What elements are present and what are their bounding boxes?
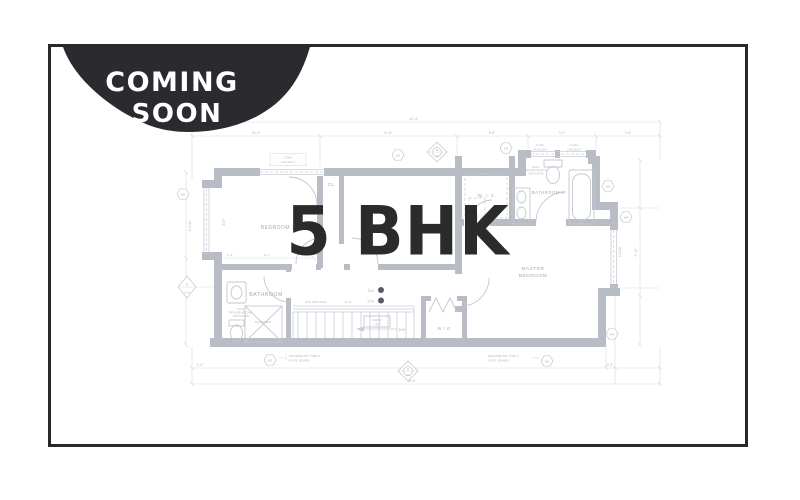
dim-label: 1'-4" — [197, 363, 205, 367]
vent-note: VENTILATION — [528, 172, 544, 175]
badge-line-1: COMING — [105, 67, 238, 98]
callout-w3-icon: W3 — [541, 356, 553, 366]
vent-note: VENTILATION — [233, 314, 250, 318]
hall-dim: 11'-6" — [344, 300, 351, 304]
smoke-detector-label: SA — [368, 288, 374, 293]
dim-label: 3'-0" — [559, 131, 567, 135]
smoke-detector-dot — [378, 287, 384, 293]
vent-note: NOTE: — [237, 307, 245, 311]
svg-text:W5: W5 — [268, 359, 273, 363]
callout-w5-icon: W5 — [264, 355, 276, 365]
toilet-icon — [544, 160, 562, 167]
callout-w4-icon: W4 — [620, 212, 632, 222]
svg-text:W2: W2 — [396, 154, 401, 158]
room-label-master-1: MASTER — [522, 266, 545, 272]
svg-text:W4: W4 — [610, 333, 615, 337]
svg-text:W3: W3 — [606, 185, 611, 189]
co-detector-dot — [378, 298, 384, 304]
callout-w3-icon: W3 — [602, 181, 614, 191]
svg-text:W4: W4 — [624, 216, 629, 220]
header-note: 2-2x8+ — [284, 156, 293, 160]
callout-w3-icon: W3 — [500, 143, 512, 153]
header-note: L4x3.5x1/4 — [567, 148, 581, 152]
stair-note-line2: 7-3/4" — [373, 322, 381, 326]
dim-label: 2'-4" — [607, 363, 615, 367]
dim-right-rot: 5'-10" — [634, 247, 638, 257]
dim-overall-top: 41'-4" — [409, 117, 419, 121]
section-marker-a-icon: A A-10 — [178, 276, 214, 298]
stairs-dn-label: DN — [399, 327, 406, 332]
vent-note: PROVIDE MECHAN. — [229, 310, 254, 314]
framing-label: 2-2x10 — [618, 247, 622, 258]
section-marker-b-bottom-icon: B A-6 — [398, 361, 418, 381]
svg-text:A-6: A-6 — [435, 156, 439, 159]
gypsum-note: GYPS. BOARD — [488, 359, 510, 363]
callout-w2-icon: W2 — [392, 150, 404, 160]
stairs: 16R @ 7-3/4" — [293, 306, 414, 338]
detectors: SA CO — [368, 287, 385, 304]
co-detector-label: CO — [368, 299, 375, 304]
washer-dryer-closet — [429, 298, 457, 312]
svg-text:W3: W3 — [504, 147, 509, 151]
dim-label: 2'-8" — [625, 131, 633, 135]
room-label-closet: CL — [328, 182, 335, 187]
svg-text:B: B — [436, 148, 438, 152]
dim-label: 1'-4" — [227, 253, 233, 257]
svg-text:B: B — [407, 367, 409, 371]
dim-label: 6'-4" — [264, 253, 270, 257]
room-label-shower: SHOWER — [255, 320, 272, 324]
callout-w6-icon: W6 — [177, 189, 189, 199]
header-note: 2-2x8+ — [536, 143, 545, 147]
svg-text:W3: W3 — [545, 360, 550, 364]
svg-text:W6: W6 — [181, 193, 186, 197]
rail-note: 2'-8" HIGH RAIL — [305, 300, 327, 304]
header-note: L4x3.5x1/4 — [533, 148, 547, 152]
svg-text:A-6: A-6 — [406, 375, 410, 378]
page-title: 5 BHK — [286, 193, 509, 272]
room-label-bathroom2: BATHROOM 2 — [532, 190, 565, 195]
dim-label: 6'-8" — [489, 131, 497, 135]
section-marker-b-top-icon: B A-6 — [427, 142, 447, 162]
gypsum-note: PROVIDE 5/8" TYPE X — [289, 354, 320, 358]
room-label-bathroom: BATHROOM — [249, 292, 283, 298]
header-note: 2-2x8+ — [570, 143, 579, 147]
room-label-master-2: BEDROOM — [519, 273, 547, 279]
svg-text:A-10: A-10 — [184, 291, 190, 295]
header-note: L4x3.5x1/4 — [281, 160, 295, 164]
gypsum-note: PROVIDE 5/8" TYPE X — [488, 354, 519, 358]
room-label-wd: W / D — [438, 326, 451, 331]
callout-w4-icon: W4 — [606, 329, 618, 339]
gypsum-note: GYPS. BOARD — [289, 359, 311, 363]
dim-label: 11'-6" — [384, 131, 393, 135]
badge-line-2: SOON — [132, 99, 223, 129]
stair-note-line1: 16R @ — [372, 318, 381, 322]
dim-left-rot: 8'-6" — [222, 218, 226, 226]
sink-icon — [227, 282, 246, 303]
coming-soon-badge: COMING SOON — [50, 47, 320, 147]
framing-label: 2-2x10 — [188, 221, 192, 232]
